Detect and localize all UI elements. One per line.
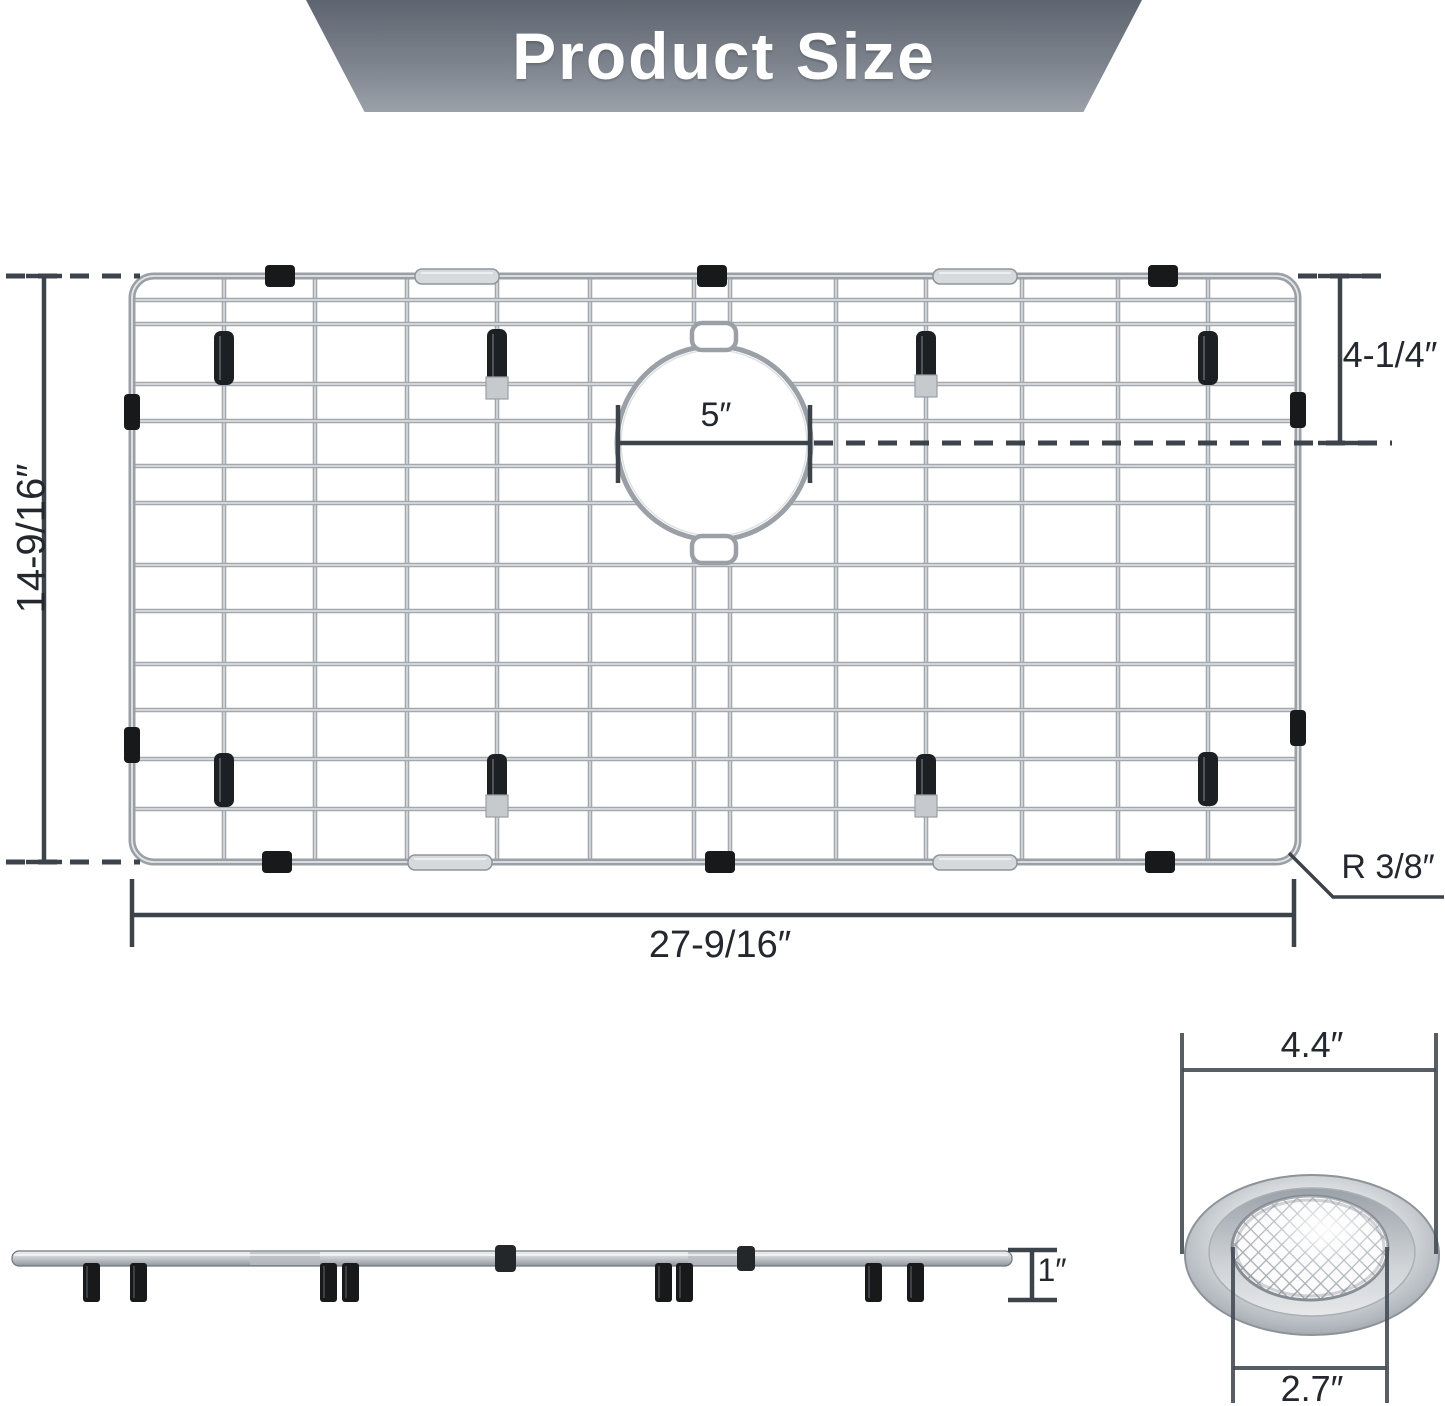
rail-sleeve	[933, 855, 1017, 870]
square-connector	[486, 377, 508, 399]
side-view-foot	[655, 1263, 672, 1302]
square-connector	[915, 375, 937, 397]
hook-clip	[1198, 331, 1218, 385]
rail-clip	[1145, 851, 1175, 873]
side-view-foot	[342, 1263, 359, 1302]
corner-radius-label: R 3/8″	[1288, 848, 1445, 887]
strainer-mesh-label: 2.7″	[1242, 1368, 1382, 1406]
strainer-mesh-shine	[1232, 1196, 1388, 1300]
edge-clip	[124, 727, 140, 763]
side-view-foot	[676, 1263, 693, 1302]
square-connector	[486, 795, 508, 817]
hole-top-connector	[692, 323, 736, 350]
strainer-view	[1182, 1033, 1439, 1403]
bar-clamp	[495, 1245, 516, 1272]
rail-sleeve	[933, 269, 1017, 284]
side-view-foot	[907, 1263, 924, 1302]
edge-clip	[124, 394, 140, 430]
rail-clip	[262, 851, 292, 873]
hook-clip	[487, 329, 507, 383]
rail-clip	[697, 265, 727, 287]
edge-clip	[1290, 710, 1306, 746]
rail-clip	[1148, 265, 1178, 287]
side-view	[12, 1245, 1057, 1302]
diagram-canvas	[0, 0, 1445, 1406]
side-view-foot	[130, 1263, 147, 1302]
hole-diameter-label: 5″	[666, 396, 766, 435]
side-view-foot	[320, 1263, 337, 1302]
strainer-outer-label: 4.4″	[1242, 1024, 1382, 1066]
hook-clip	[214, 753, 234, 807]
hole-offset-label: 4-1/4″	[1290, 334, 1445, 376]
rail-sleeve	[415, 269, 499, 284]
hook-clip	[1198, 752, 1218, 806]
bar-sleeve	[250, 1252, 320, 1265]
rail-sleeve	[408, 855, 492, 870]
rail-clip	[265, 265, 295, 287]
width-dimension-label: 27-9/16″	[570, 924, 870, 967]
square-connector	[915, 795, 937, 817]
height-dimension-label: 14-9/16″	[10, 389, 55, 689]
hole-bottom-connector	[692, 536, 736, 563]
bar-clamp	[737, 1246, 755, 1271]
rail-clip	[705, 851, 735, 873]
product-size-diagram: Product Size	[0, 0, 1445, 1406]
side-view-foot	[865, 1263, 882, 1302]
side-view-foot	[83, 1263, 100, 1302]
edge-clip	[1290, 392, 1306, 428]
thickness-label: 1″	[1022, 1252, 1082, 1289]
hook-clip	[214, 331, 234, 385]
